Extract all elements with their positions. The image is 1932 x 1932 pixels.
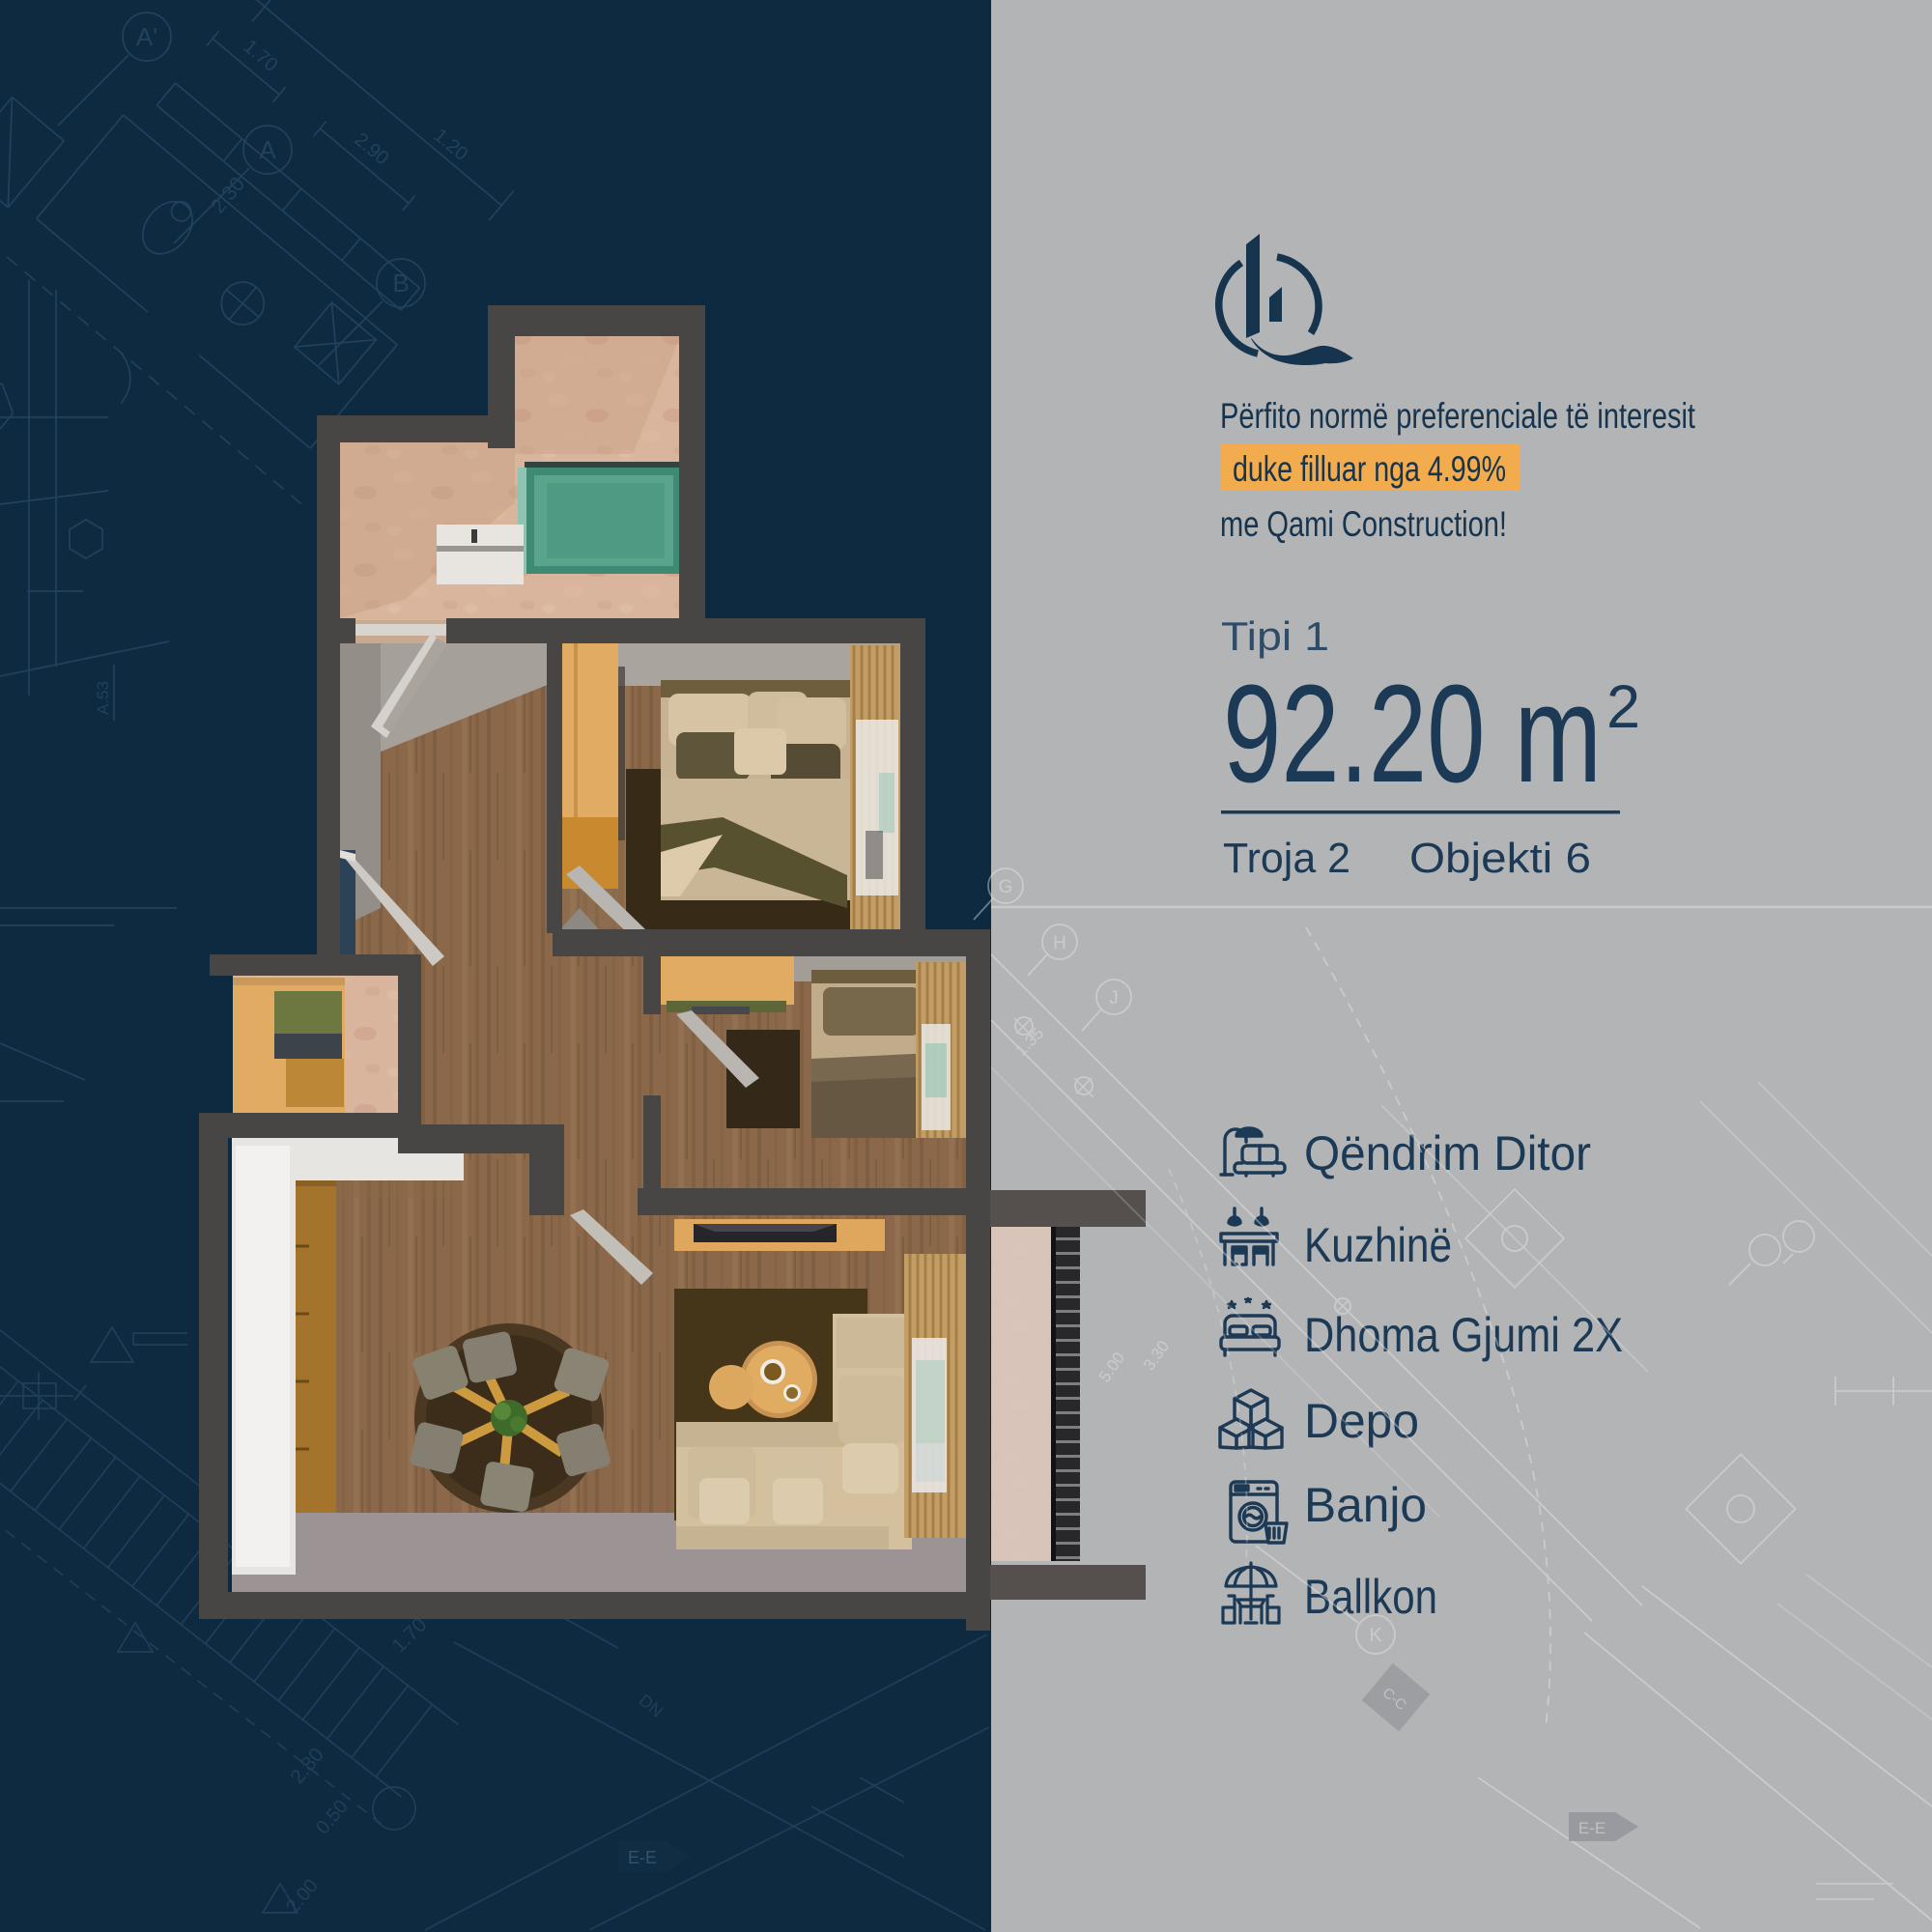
svg-text:Troja 2: Troja 2 [1223,835,1350,882]
svg-text:Tipi 1: Tipi 1 [1221,613,1329,659]
svg-text:Kuzhinë: Kuzhinë [1304,1218,1452,1272]
svg-text:H: H [1053,933,1066,953]
svg-text:duke filluar nga 4.99%: duke filluar nga 4.99% [1233,449,1506,489]
svg-text:A.53: A.53 [94,681,112,715]
svg-text:me Qami Construction!: me Qami Construction! [1220,504,1507,544]
svg-text:E-E: E-E [1578,1819,1605,1837]
svg-text:G: G [999,877,1013,897]
svg-text:K: K [1369,1625,1382,1646]
svg-text:J: J [1109,988,1119,1009]
svg-text:2: 2 [1606,673,1640,741]
svg-text:A': A' [136,22,157,51]
svg-text:92.20 m: 92.20 m [1223,656,1602,811]
svg-text:E-E: E-E [628,1848,657,1867]
svg-text:Objekti 6: Objekti 6 [1409,835,1591,882]
svg-text:Përfito normë preferenciale të: Përfito normë preferenciale të interesit [1220,396,1696,436]
